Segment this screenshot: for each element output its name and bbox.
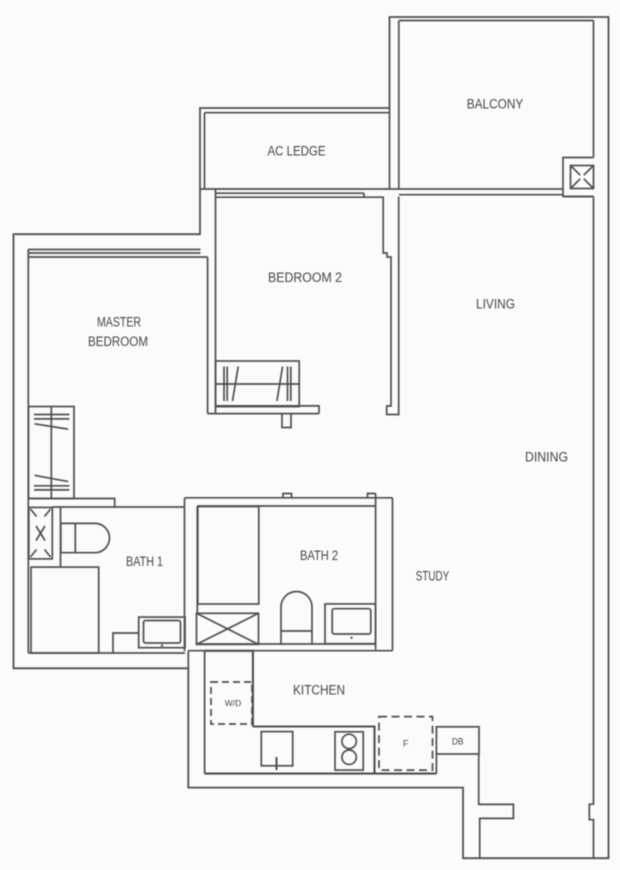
svg-text:AC LEDGE: AC LEDGE bbox=[268, 144, 326, 159]
svg-text:W/D: W/D bbox=[225, 699, 242, 708]
svg-text:BATH 2: BATH 2 bbox=[300, 548, 338, 563]
svg-text:DINING: DINING bbox=[525, 450, 568, 465]
svg-text:KITCHEN: KITCHEN bbox=[293, 683, 345, 698]
svg-text:STUDY: STUDY bbox=[416, 569, 450, 584]
svg-text:MASTER: MASTER bbox=[97, 315, 141, 330]
svg-text:F: F bbox=[403, 739, 409, 749]
svg-text:BEDROOM: BEDROOM bbox=[88, 334, 148, 349]
svg-text:BALCONY: BALCONY bbox=[467, 97, 524, 112]
svg-text:LIVING: LIVING bbox=[476, 297, 515, 312]
svg-text:DB: DB bbox=[452, 737, 464, 747]
svg-text:BATH 1: BATH 1 bbox=[126, 554, 163, 569]
svg-text:BEDROOM 2: BEDROOM 2 bbox=[268, 270, 342, 285]
